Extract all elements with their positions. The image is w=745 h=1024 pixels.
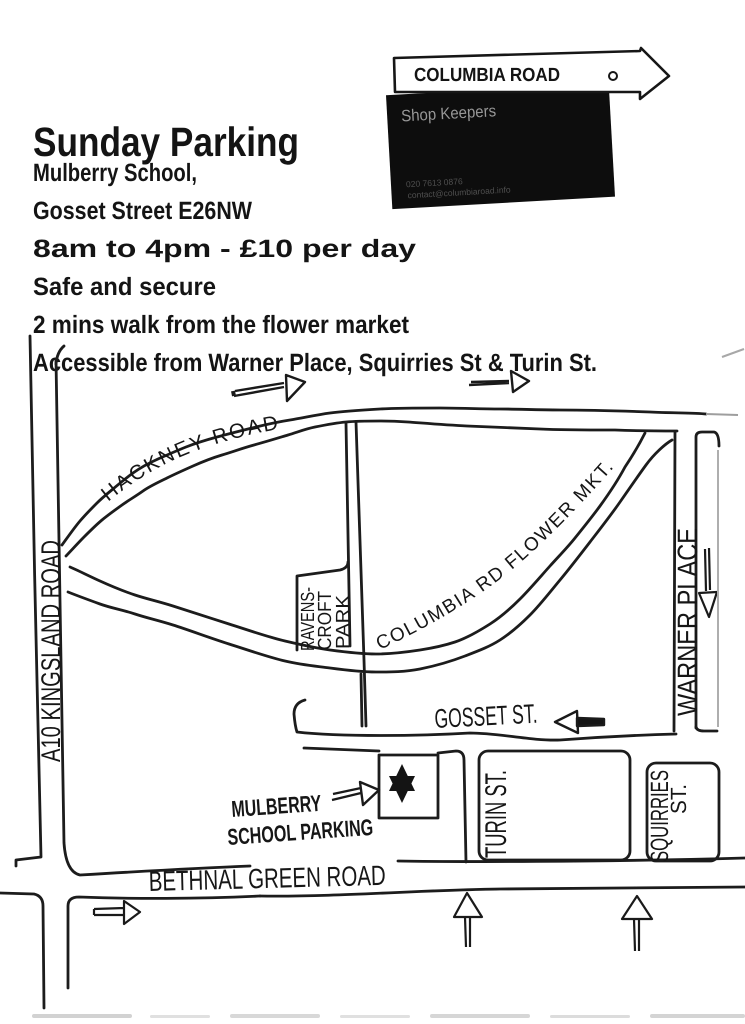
svg-text:BETHNAL GREEN ROAD: BETHNAL GREEN ROAD <box>148 860 386 897</box>
svg-text:ST.: ST. <box>666 784 691 814</box>
svg-text:2 mins walk from the flower ma: 2 mins walk from the flower market <box>33 311 410 339</box>
svg-text:A10 KINGSLAND ROAD: A10 KINGSLAND ROAD <box>36 540 66 762</box>
svg-text:WARNER PLACE: WARNER PLACE <box>672 528 703 716</box>
svg-text:Gosset Street E26NW: Gosset Street E26NW <box>33 197 252 225</box>
svg-text:SQUIRRIES: SQUIRRIES <box>646 770 674 862</box>
svg-text:Safe and secure: Safe and secure <box>33 273 216 301</box>
svg-text:PARK: PARK <box>333 595 354 649</box>
svg-text:GOSSET ST.: GOSSET ST. <box>434 699 538 734</box>
svg-text:8am to 4pm - £10 per day: 8am to 4pm - £10 per day <box>33 235 416 263</box>
svg-text:TURIN ST.: TURIN ST. <box>480 770 513 858</box>
svg-text:COLUMBIA ROAD: COLUMBIA ROAD <box>414 65 560 86</box>
svg-text:Mulberry School,: Mulberry School, <box>33 159 197 187</box>
